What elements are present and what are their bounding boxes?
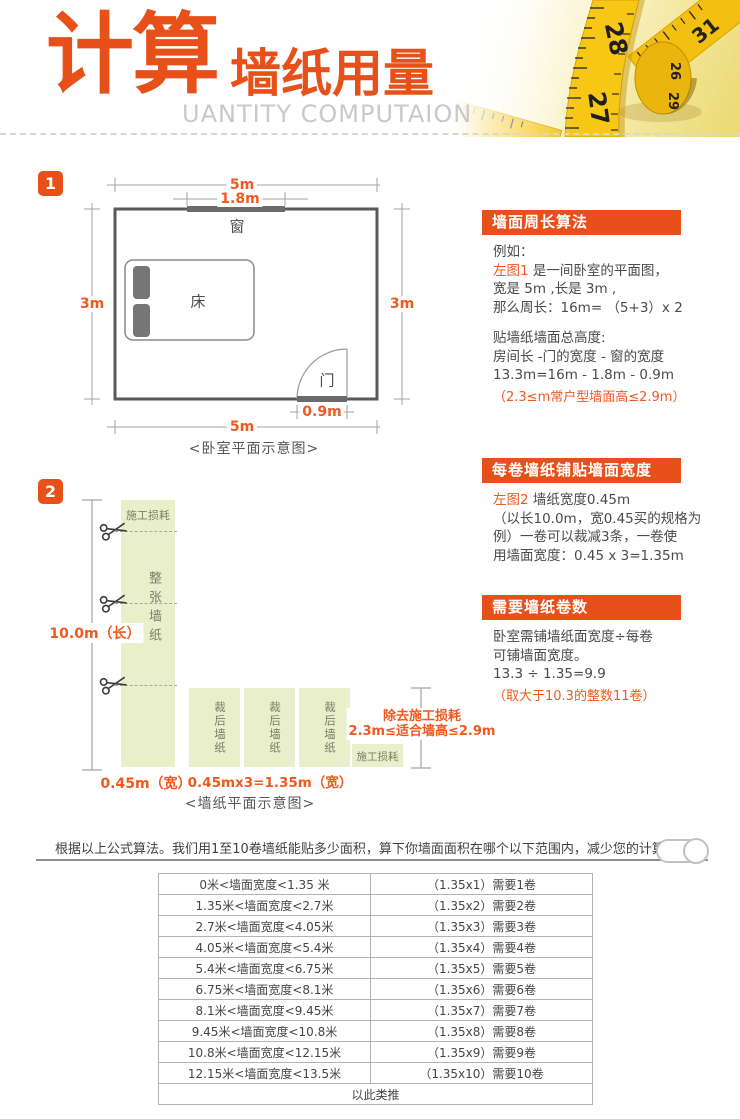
page-title-main: 计算 (46, 12, 218, 98)
wallpaper-calculation-infographic: 31 26 29 (0, 0, 740, 1119)
table-row: 8.1米<墙面宽度<9.45米（1.35x7）需要7卷 (159, 1000, 593, 1021)
panel1-note: （2.3≤m常户型墙面高≤2.9m） (493, 389, 712, 408)
wall-width-range-cell: 8.1米<墙面宽度<9.45米 (159, 1000, 371, 1021)
wallpaper-roll-end-icon (683, 838, 709, 864)
panel1-line-perimeter: 那么周长：16m= （5+3）x 2 (493, 299, 712, 318)
wallpaper-roll-diagram: 施工损耗 整张墙纸 裁后墙纸 裁后墙纸 裁后 (30, 478, 520, 823)
panel1-line-formula: 房间长 -门的宽度 - 窗的宽度 (493, 348, 712, 367)
table-row: 10.8米<墙面宽度<12.15米（1.35x9）需要9卷 (159, 1042, 593, 1063)
rolls-needed-cell: （1.35x6）需要6卷 (371, 979, 593, 1000)
panel1-line-figure: 左图1 是一间卧室的平面图， (493, 262, 712, 281)
dim-window-18m: 1.8m (217, 191, 262, 207)
table-row: 6.75米<墙面宽度<8.1米（1.35x6）需要6卷 (159, 979, 593, 1000)
cut-strip-label: 裁后墙纸 (202, 695, 228, 761)
panel2-line-spec2: 例）一卷可以裁减3条，一卷使 (493, 528, 712, 547)
page-subtitle-english: UANTITY COMPUTAION (182, 100, 472, 128)
dim-right-3m: 3m (387, 296, 417, 312)
full-roll-label: 整张墙纸 (135, 550, 163, 668)
panel1-line-height-title: 贴墙纸墙面总高度: (493, 329, 712, 348)
cut-strip-label: 裁后墙纸 (257, 695, 283, 761)
panel2-line-spec1: （以长10.0m，宽0.45买的规格为 (493, 510, 712, 529)
panel2-line-figure: 左图2 墙纸宽度0.45m (493, 491, 712, 510)
bedroom-floorplan-diagram: 5m 1.8m 窗 床 门 3m 3m 0.9m 5m <卧室平面示意图> (70, 165, 430, 465)
measuring-tape-photo: 31 26 29 (455, 0, 740, 137)
roll-length-label: 10.0m（长） (46, 623, 143, 643)
table-row: 5.4米<墙面宽度<6.75米（1.35x5）需要5卷 (159, 958, 593, 979)
table-footer-row: 以此类推 (159, 1084, 593, 1105)
rolls-needed-cell: （1.35x10）需要10卷 (371, 1063, 593, 1084)
page-title-secondary: 墙纸用量 (230, 50, 434, 100)
wall-width-range-cell: 1.35米<墙面宽度<2.7米 (159, 895, 371, 916)
section1-badge: 1 (38, 171, 63, 196)
rolls-needed-cell: （1.35x3）需要3卷 (371, 916, 593, 937)
panel2-line-result: 用墙面宽度：0.45 x 3=1.35m (493, 547, 712, 566)
table-intro-text: 根据以上公式算法。我们用1至10卷墙纸能贴多少面积，算下你墙面面积在哪个以下范围… (55, 838, 691, 857)
rolls-needed-cell: （1.35x9）需要9卷 (371, 1042, 593, 1063)
panel3-note: （取大于10.3的整数11卷） (493, 688, 712, 707)
cut-strip-label: 裁后墙纸 (312, 695, 338, 761)
dim-door-09m: 0.9m (299, 404, 344, 420)
roll-coverage-panel: 每卷墙纸铺贴墙面宽度 左图2 墙纸宽度0.45m （以长10.0m，宽0.45买… (482, 458, 712, 565)
photo-fade-overlay (455, 0, 575, 137)
range-table-body: 0米<墙面宽度<1.35 米（1.35x1）需要1卷1.35米<墙面宽度<2.7… (159, 874, 593, 1084)
wall-width-range-cell: 4.05米<墙面宽度<5.4米 (159, 937, 371, 958)
rolls-needed-cell: （1.35x1）需要1卷 (371, 874, 593, 895)
rolls-needed-panel: 需要墙纸卷数 卧室需铺墙纸面宽度÷每卷 可铺墙面宽度。 13.3 ÷ 1.35=… (482, 595, 712, 706)
rolls-needed-cell: （1.35x7）需要7卷 (371, 1000, 593, 1021)
tape-number-27: 27 (582, 90, 614, 127)
cut-width-dimension: 0.45mx3=1.35m（宽） (185, 771, 356, 791)
rolls-needed-cell: （1.35x8）需要8卷 (371, 1021, 593, 1042)
dim-bottom-5m: 5m (227, 419, 257, 435)
rolls-needed-cell: （1.35x5）需要5卷 (371, 958, 593, 979)
rolls-needed-cell: （1.35x2）需要2卷 (371, 895, 593, 916)
table-row: 2.7米<墙面宽度<4.05米（1.35x3）需要3卷 (159, 916, 593, 937)
figure1-ref: 左图1 (493, 263, 529, 279)
door-label: 门 (319, 370, 334, 391)
bed-label: 床 (190, 291, 205, 312)
perimeter-method-panel: 墙面周长算法 例如： 左图1 是一间卧室的平面图， 宽是 5m ,长是 3m ,… (482, 210, 712, 407)
panel1-line-example: 例如： (493, 243, 712, 262)
wall-width-range-cell: 0米<墙面宽度<1.35 米 (159, 874, 371, 895)
wall-width-range-cell: 12.15米<墙面宽度<13.5米 (159, 1063, 371, 1084)
header-dashed-divider (0, 133, 740, 135)
floorplan-caption: <卧室平面示意图> (189, 438, 319, 458)
table-row: 0米<墙面宽度<1.35 米（1.35x1）需要1卷 (159, 874, 593, 895)
panel1-line-result: 13.3m=16m - 1.8m - 0.9m (493, 366, 712, 385)
wall-width-range-cell: 2.7米<墙面宽度<4.05米 (159, 916, 371, 937)
table-row: 9.45米<墙面宽度<10.8米（1.35x8）需要8卷 (159, 1021, 593, 1042)
wall-width-range-cell: 9.45米<墙面宽度<10.8米 (159, 1021, 371, 1042)
table-row: 12.15米<墙面宽度<13.5米（1.35x10）需要10卷 (159, 1063, 593, 1084)
rolls-needed-title: 需要墙纸卷数 (482, 595, 681, 620)
tape-number-29: 29 (665, 92, 680, 110)
roll-width-label: 0.45m（宽） (97, 773, 194, 793)
roll-coverage-title: 每卷墙纸铺贴墙面宽度 (482, 458, 681, 483)
divider-line (36, 859, 708, 861)
tape-number-26: 26 (667, 62, 682, 80)
wall-width-range-cell: 6.75米<墙面宽度<8.1米 (159, 979, 371, 1000)
panel3-line-formula1: 卧室需铺墙纸面宽度÷每卷 (493, 628, 712, 647)
panel3-line-formula2: 可铺墙面宽度。 (493, 647, 712, 666)
wall-width-rolls-table: 0米<墙面宽度<1.35 米（1.35x1）需要1卷1.35米<墙面宽度<2.7… (158, 873, 593, 1105)
figure2-ref: 左图2 (493, 492, 529, 508)
window-label: 窗 (229, 216, 244, 237)
perimeter-panel-title: 墙面周长算法 (482, 210, 681, 235)
wall-height-note-line2: 2.3m≤适合墙高≤2.9m (349, 724, 496, 739)
wall-height-note-line1: 除去施工损耗 (349, 709, 496, 724)
rolls-needed-cell: （1.35x4）需要4卷 (371, 937, 593, 958)
table-footer-cell: 以此类推 (159, 1084, 593, 1105)
waste-box-label: 施工损耗 (352, 749, 403, 764)
wall-width-range-cell: 5.4米<墙面宽度<6.75米 (159, 958, 371, 979)
panel1-line-size: 宽是 5m ,长是 3m , (493, 280, 712, 299)
roll-caption: <墙纸平面示意图> (185, 793, 315, 813)
wall-height-note: 除去施工损耗 2.3m≤适合墙高≤2.9m (347, 708, 498, 740)
panel3-line-result: 13.3 ÷ 1.35=9.9 (493, 665, 712, 684)
waste-top-label: 施工损耗 (121, 507, 175, 523)
dim-left-3m: 3m (77, 296, 107, 312)
wall-width-range-cell: 10.8米<墙面宽度<12.15米 (159, 1042, 371, 1063)
table-row: 1.35米<墙面宽度<2.7米（1.35x2）需要2卷 (159, 895, 593, 916)
table-row: 4.05米<墙面宽度<5.4米（1.35x4）需要4卷 (159, 937, 593, 958)
